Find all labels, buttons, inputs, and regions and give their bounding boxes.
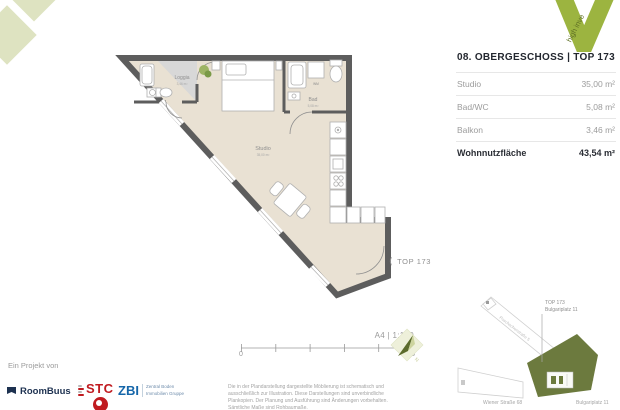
floor-plan: WM Loggia 3,46 xyxy=(100,48,400,300)
north-letter: N xyxy=(413,357,420,364)
stc-text: STC xyxy=(86,382,114,395)
unit-title: 08. OBERGESCHOSS | TOP 173 xyxy=(456,52,616,63)
row-value: 35,00 m² xyxy=(581,79,615,89)
street-label-left: Wiener Straße 68 xyxy=(483,400,522,406)
row-label: Studio xyxy=(457,79,481,89)
bed xyxy=(212,61,282,111)
table-row-bad-wc: Bad/WC 5,08 m² xyxy=(456,95,616,118)
project-of-label: Ein Projekt von xyxy=(8,361,58,370)
v-logo-icon: high inve xyxy=(548,0,620,52)
unit-callout: ⟨ TOP 173 xyxy=(389,256,431,267)
roombuus-logo: RoomBuus xyxy=(6,386,71,397)
row-value: 5,08 m² xyxy=(586,102,615,112)
zbi-sub-line1: Zentral Boden xyxy=(146,384,174,389)
scale-start: 0 xyxy=(239,351,243,358)
row-value: 3,46 m² xyxy=(586,125,615,135)
building-footprint xyxy=(547,372,573,388)
row-label: Wohnnutzfläche xyxy=(457,148,526,158)
zbi-subtitle: Zentral Boden Immobilien Gruppe xyxy=(142,384,184,396)
unit-callout-label: TOP 173 xyxy=(397,257,431,266)
v-brand-logo: high inve xyxy=(548,0,620,52)
site-callout-address: Bulgariplatz 11 xyxy=(545,307,578,313)
street-block-lower xyxy=(458,368,523,398)
street-label-right: Bulgariplatz 11 xyxy=(576,400,609,406)
site-map: TOP 173 Bulgariplatz 11 Poschacherstraße… xyxy=(455,292,620,408)
stc-dot-icon xyxy=(93,397,108,410)
room-label-studio: Studio xyxy=(255,146,271,152)
table-row-studio: Studio 35,00 m² xyxy=(456,72,616,95)
wm-label: WM xyxy=(313,82,319,86)
row-label: Bad/WC xyxy=(457,102,489,112)
room-label-bad: Bad xyxy=(309,97,318,103)
table-row-balkon: Balkon 3,46 m² xyxy=(456,118,616,141)
lower-mark xyxy=(461,380,465,385)
zbi-sub-line2: Immobilien Gruppe xyxy=(146,391,184,396)
room-label-loggia: Loggia xyxy=(174,75,189,81)
stc-logo: STC xyxy=(78,382,114,396)
row-value: 43,54 m² xyxy=(579,148,615,158)
corner-mark xyxy=(486,301,489,304)
stc-bars-icon xyxy=(78,385,84,396)
unit-info-panel: 08. OBERGESCHOSS | TOP 173 Studio 35,00 … xyxy=(456,52,616,164)
area-table: Studio 35,00 m² Bad/WC 5,08 m² Balkon 3,… xyxy=(456,72,616,164)
room-area-studio: 35,00 m² xyxy=(257,153,270,157)
chevron-left-icon: ⟨ xyxy=(389,256,393,267)
north-arrow-icon: N xyxy=(388,326,426,364)
row-label: Balkon xyxy=(457,125,483,135)
roombuus-text: RoomBuus xyxy=(20,386,71,397)
room-area-loggia: 3,46 m² xyxy=(177,82,188,86)
table-row-total: Wohnnutzfläche 43,54 m² xyxy=(456,141,616,164)
site-callout-top: TOP 173 xyxy=(545,300,565,306)
room-area-bad: 5,08 m² xyxy=(308,104,319,108)
zbi-logo: ZBI Zentral Boden Immobilien Gruppe xyxy=(118,384,184,397)
floorplan-page: high inve 08. OBERGESCHOSS | TOP 173 Stu… xyxy=(0,0,620,410)
disclaimer-text: Die in der Plandarstellung dargestellte … xyxy=(228,384,404,410)
roombuus-icon xyxy=(6,386,17,397)
zbi-text: ZBI xyxy=(118,384,139,397)
